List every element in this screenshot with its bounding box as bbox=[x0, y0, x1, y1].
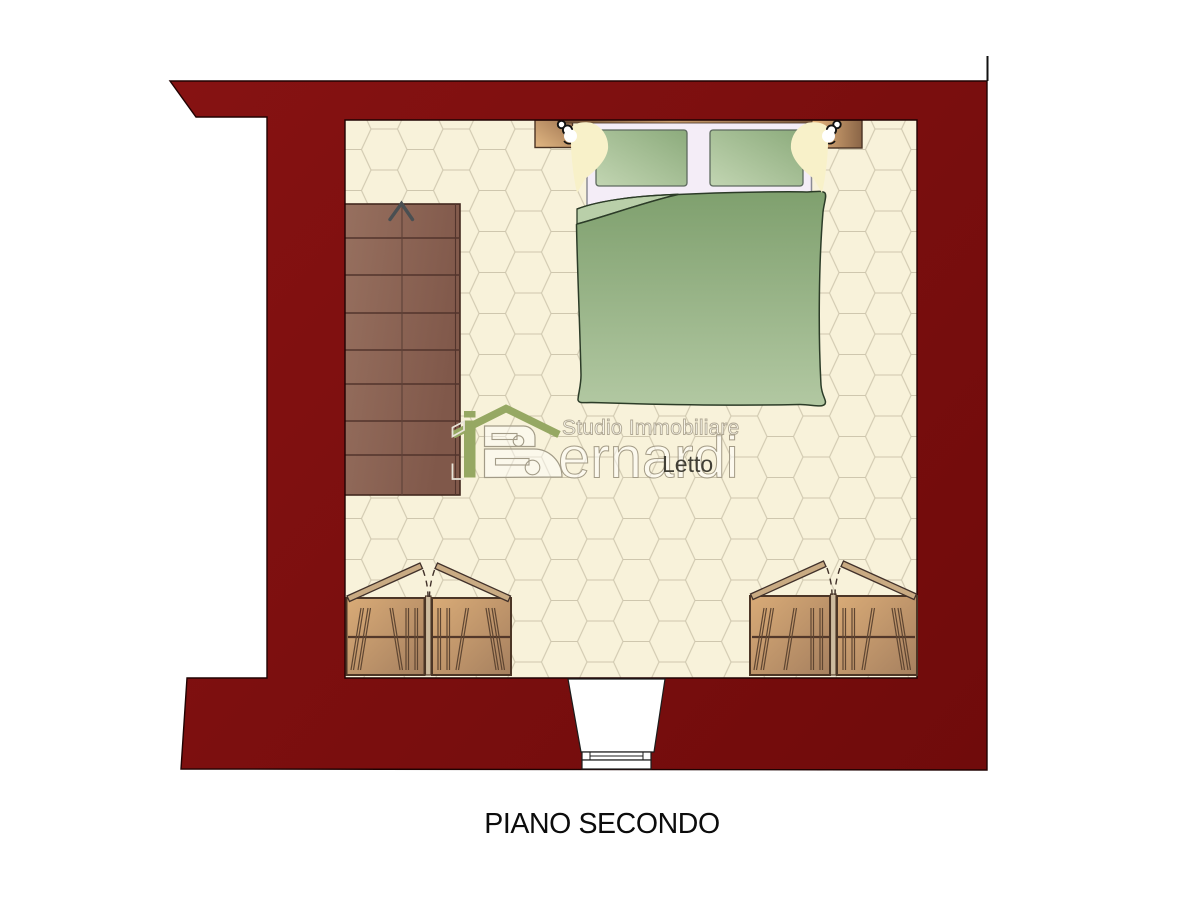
svg-text:Letto: Letto bbox=[662, 451, 713, 477]
svg-text:PIANO SECONDO: PIANO SECONDO bbox=[484, 808, 720, 840]
